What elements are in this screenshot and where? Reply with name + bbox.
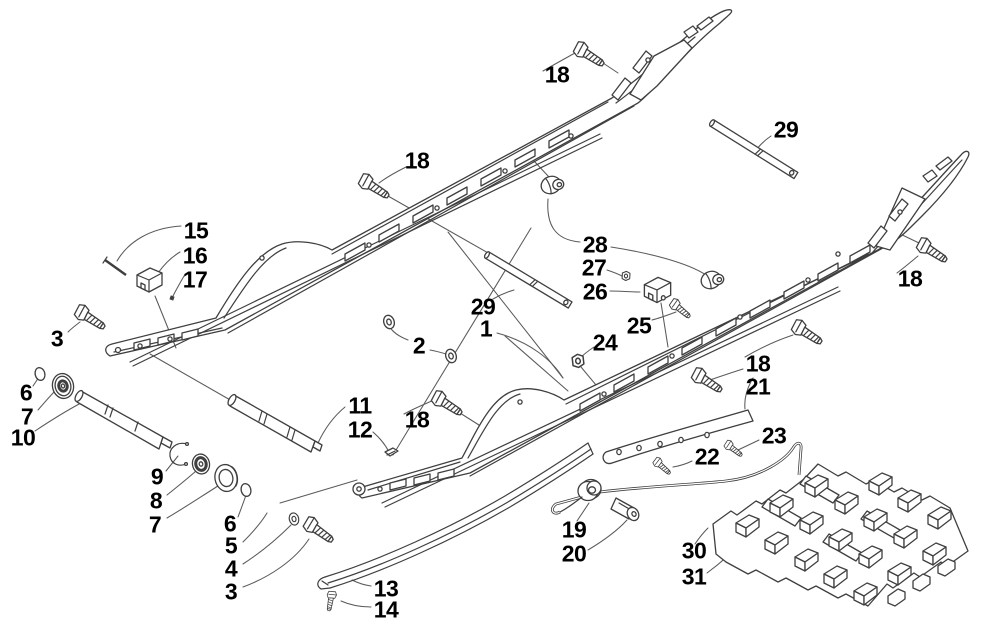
- rivet-hole: [898, 210, 902, 214]
- washer-4: [288, 512, 300, 526]
- washer-2a: [382, 314, 396, 330]
- ring-6a: [34, 367, 46, 382]
- rear-axle-arm: [603, 410, 753, 464]
- roller-7-upper: [50, 372, 76, 401]
- screw-22: [652, 456, 674, 477]
- nut-27: [622, 271, 630, 280]
- bolt-18-mid-right-b: [689, 366, 725, 397]
- track: [713, 464, 968, 606]
- rod-29-upper: [709, 119, 798, 179]
- bearing-8: [191, 452, 212, 475]
- rivet-hole: [646, 58, 650, 62]
- rivet-hole: [138, 344, 142, 348]
- block-26: [644, 277, 670, 302]
- bushing-28a: [539, 173, 566, 197]
- rivet-hole: [569, 134, 573, 138]
- bolt-18-mid-right-a: [789, 318, 825, 349]
- diagram-line-art: [0, 0, 1000, 625]
- bolt-18-top: [571, 40, 607, 71]
- rivet-hole: [367, 243, 371, 247]
- rivet-hole: [378, 487, 382, 491]
- roller-7-lower: [212, 462, 239, 493]
- rivet-hole: [602, 392, 606, 396]
- rod-29-center: [484, 251, 572, 308]
- bolt-18-far-right: [914, 236, 950, 267]
- rivet-hole: [168, 337, 172, 341]
- rivet-hole: [806, 278, 810, 282]
- rivet-hole: [260, 256, 264, 260]
- torsion-spring: [560, 480, 601, 513]
- bushing-28b: [699, 268, 726, 292]
- shoulder-bolt-20: [611, 498, 641, 523]
- rivet-hole: [518, 400, 522, 404]
- rivet-hole: [836, 252, 840, 256]
- slide-rail-far: [106, 10, 732, 366]
- nut-24: [571, 353, 584, 368]
- washer-2b: [444, 348, 458, 364]
- circlip-9: [170, 443, 188, 466]
- bolt-18-upper-left: [356, 172, 392, 203]
- screw-14: [324, 590, 337, 611]
- rivet-hole: [670, 354, 674, 358]
- parts-diagram-page: 1516171818291836710282726291225241821111…: [0, 0, 1000, 625]
- axle-11: [226, 393, 322, 452]
- dot-17: [169, 295, 174, 300]
- bolt-25: [668, 297, 693, 321]
- rivet-hole: [738, 315, 742, 319]
- ring-6b: [240, 483, 252, 498]
- screw-23: [723, 439, 745, 459]
- block-16: [137, 268, 162, 292]
- rivet-hole: [503, 169, 507, 173]
- shaft-10: [73, 389, 172, 449]
- pin-15: [103, 257, 126, 275]
- rivet-hole: [435, 206, 439, 210]
- bolt-18-center: [429, 389, 465, 420]
- bolt-3-upper: [72, 303, 108, 334]
